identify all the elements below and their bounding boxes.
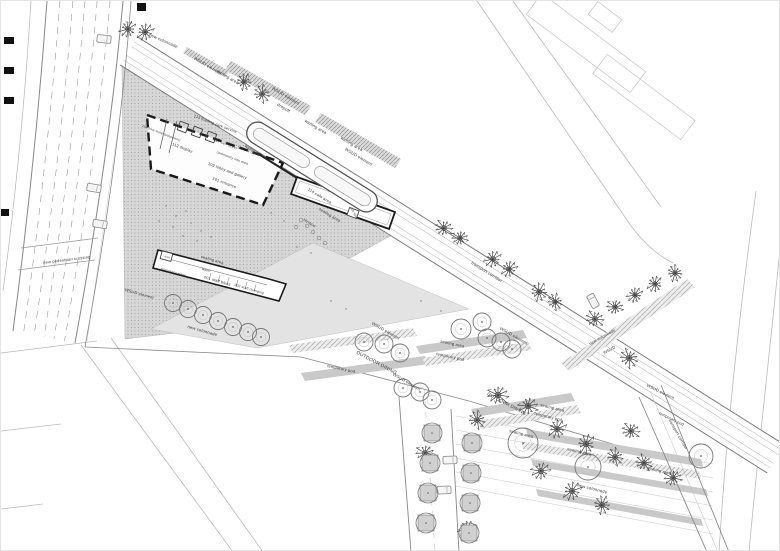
street-tree-planter-symbol <box>461 463 481 483</box>
site-plan-page: new colonnadeWSUD elementwaiting areaWSU… <box>0 0 780 551</box>
paving-dot <box>210 236 211 237</box>
car-symbol <box>92 219 107 229</box>
paving-dot <box>182 235 183 236</box>
section-marker <box>4 37 14 44</box>
paving-dot <box>330 300 331 301</box>
car-symbol <box>97 34 112 43</box>
street-tree-planter-symbol <box>420 453 440 473</box>
street-tree-planter-symbol <box>459 523 479 543</box>
paving-dot <box>345 308 346 309</box>
section-marker <box>1 209 9 216</box>
street-tree-planter-symbol <box>462 433 482 453</box>
paving-dot <box>270 212 271 213</box>
street-tree-planter-symbol <box>422 423 442 443</box>
section-marker <box>4 97 14 104</box>
car-symbol <box>86 183 101 193</box>
paving-dot <box>310 252 311 253</box>
paving-dot <box>165 205 166 206</box>
paving-dot <box>172 226 173 227</box>
car-symbol <box>443 456 457 464</box>
paving-dot <box>175 215 176 216</box>
street-tree-planter-symbol <box>418 483 438 503</box>
street-tree-planter-symbol <box>416 513 436 533</box>
car-symbol <box>437 486 451 494</box>
site-plan-drawing: new colonnadeWSUD elementwaiting areaWSU… <box>1 1 780 551</box>
paving-dot <box>200 230 201 231</box>
paving-dot <box>440 310 441 311</box>
street-tree-planter-symbol <box>460 493 480 513</box>
paving-dot <box>185 210 186 211</box>
paving-dot <box>283 220 284 221</box>
paving-dot <box>420 300 421 301</box>
paving-dot <box>196 240 197 241</box>
section-marker <box>4 67 14 74</box>
paving-dot <box>296 246 297 247</box>
paving-dot <box>190 222 191 223</box>
paving-dot <box>158 220 159 221</box>
section-marker <box>137 3 146 11</box>
